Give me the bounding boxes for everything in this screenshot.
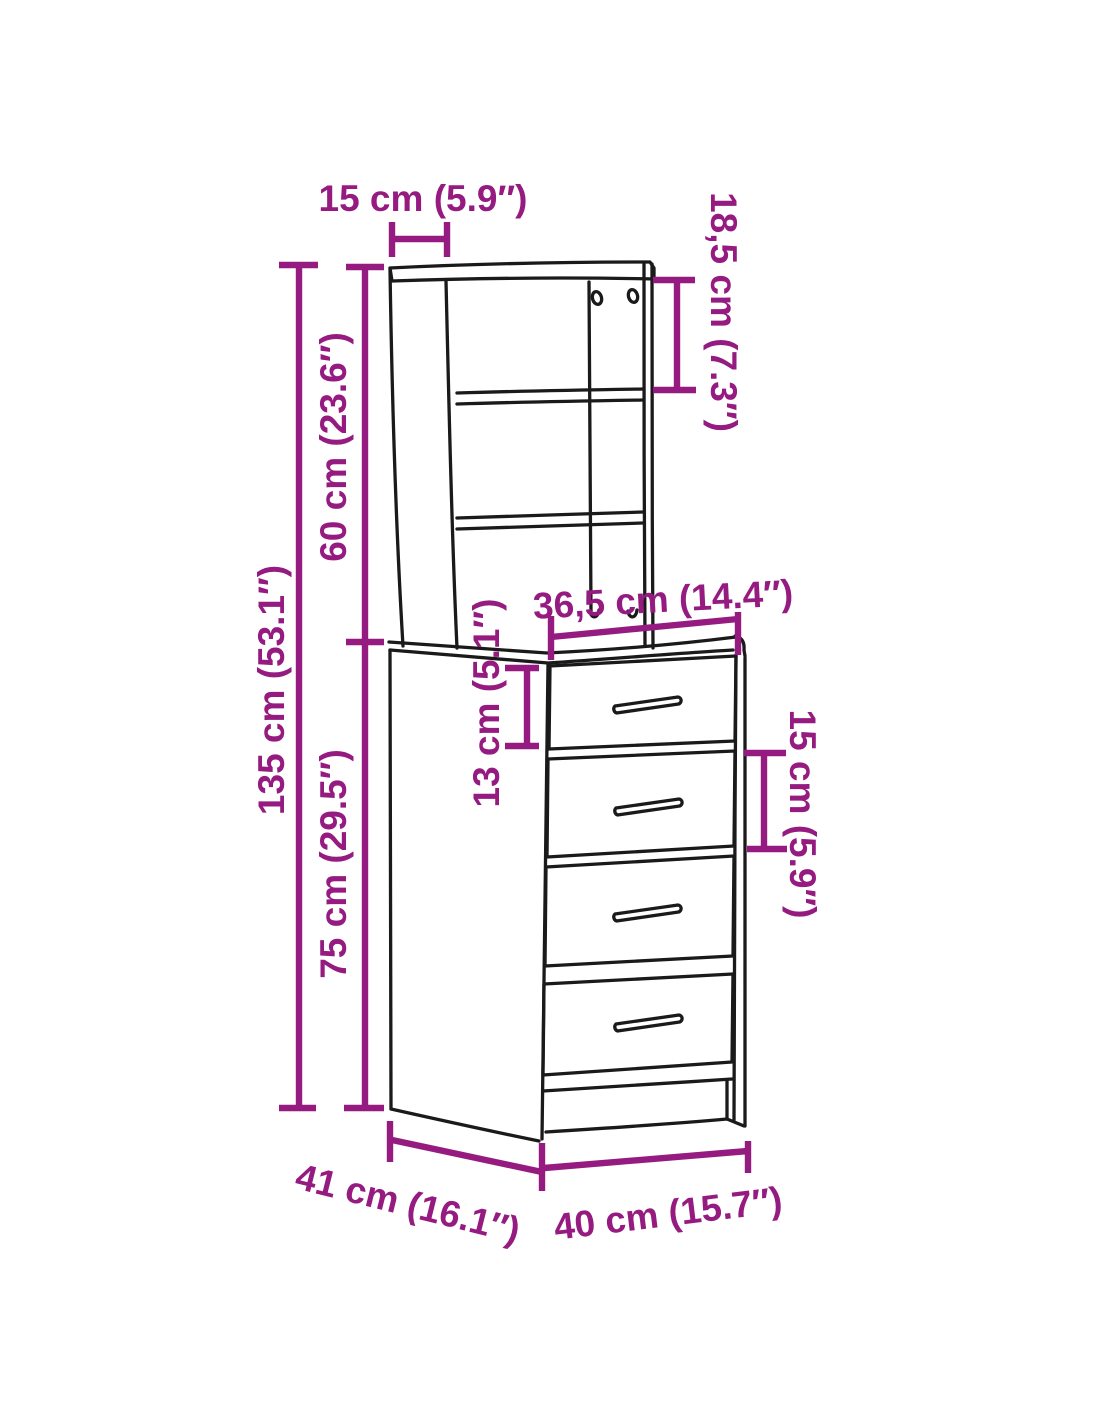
drawer-1-handle: [614, 697, 681, 713]
label-hutch-height: 60 cm (23.6″): [313, 332, 354, 562]
cabinet-drawing: [389, 262, 745, 1141]
cabinet-top-back-edge: [389, 637, 736, 653]
hutch-left-side-inner-edge: [446, 281, 457, 648]
label-base-height: 75 cm (29.5″): [313, 749, 354, 979]
label-depth: 41 cm (16.1″): [292, 1156, 525, 1251]
label-drawer-width: 36,5 cm (14.4″): [532, 572, 794, 627]
cam-hole-top-left: [591, 291, 603, 306]
drawer-2-handle: [615, 799, 682, 815]
shelf-2-front-bottom: [457, 523, 643, 529]
label-width: 40 cm (15.7″): [552, 1179, 785, 1248]
plinth-bottom-edge: [546, 1119, 727, 1132]
hutch-left-side-outer-edge: [390, 269, 403, 646]
cabinet-left-bottom-edge: [391, 1109, 539, 1141]
label-drawer-pitch: 15 cm (5.9″): [782, 710, 823, 919]
drawer-4-front: [543, 974, 733, 1075]
cabinet-left-outer-edge: [390, 650, 391, 1109]
label-shelf-height: 18,5 cm (7.3″): [703, 192, 744, 432]
drawer-3-handle: [614, 905, 681, 921]
dim-width-line: [544, 1151, 748, 1168]
dim-depth-line: [392, 1140, 542, 1172]
bottom-rail-edge: [543, 1079, 732, 1091]
label-hutch-depth: 15 cm (5.9″): [319, 178, 528, 219]
drawer-4-handle: [615, 1015, 682, 1031]
label-total-height: 135 cm (53.1″): [251, 565, 292, 815]
dimension-diagram: 15 cm (5.9″) 18,5 cm (7.3″) 60 cm (23.6″…: [0, 0, 1100, 1422]
hutch-top-board: [390, 262, 654, 281]
diagram-canvas: 15 cm (5.9″) 18,5 cm (7.3″) 60 cm (23.6″…: [0, 0, 1100, 1422]
shelf-2-front-top: [457, 512, 643, 518]
shelf-1-front-bottom: [457, 400, 643, 404]
hutch-back-corner-line: [589, 282, 591, 613]
label-top-drawer-height: 13 cm (5.1″): [466, 599, 507, 808]
cam-hole-top-right: [627, 289, 639, 304]
shelf-1-front-top: [457, 389, 643, 393]
